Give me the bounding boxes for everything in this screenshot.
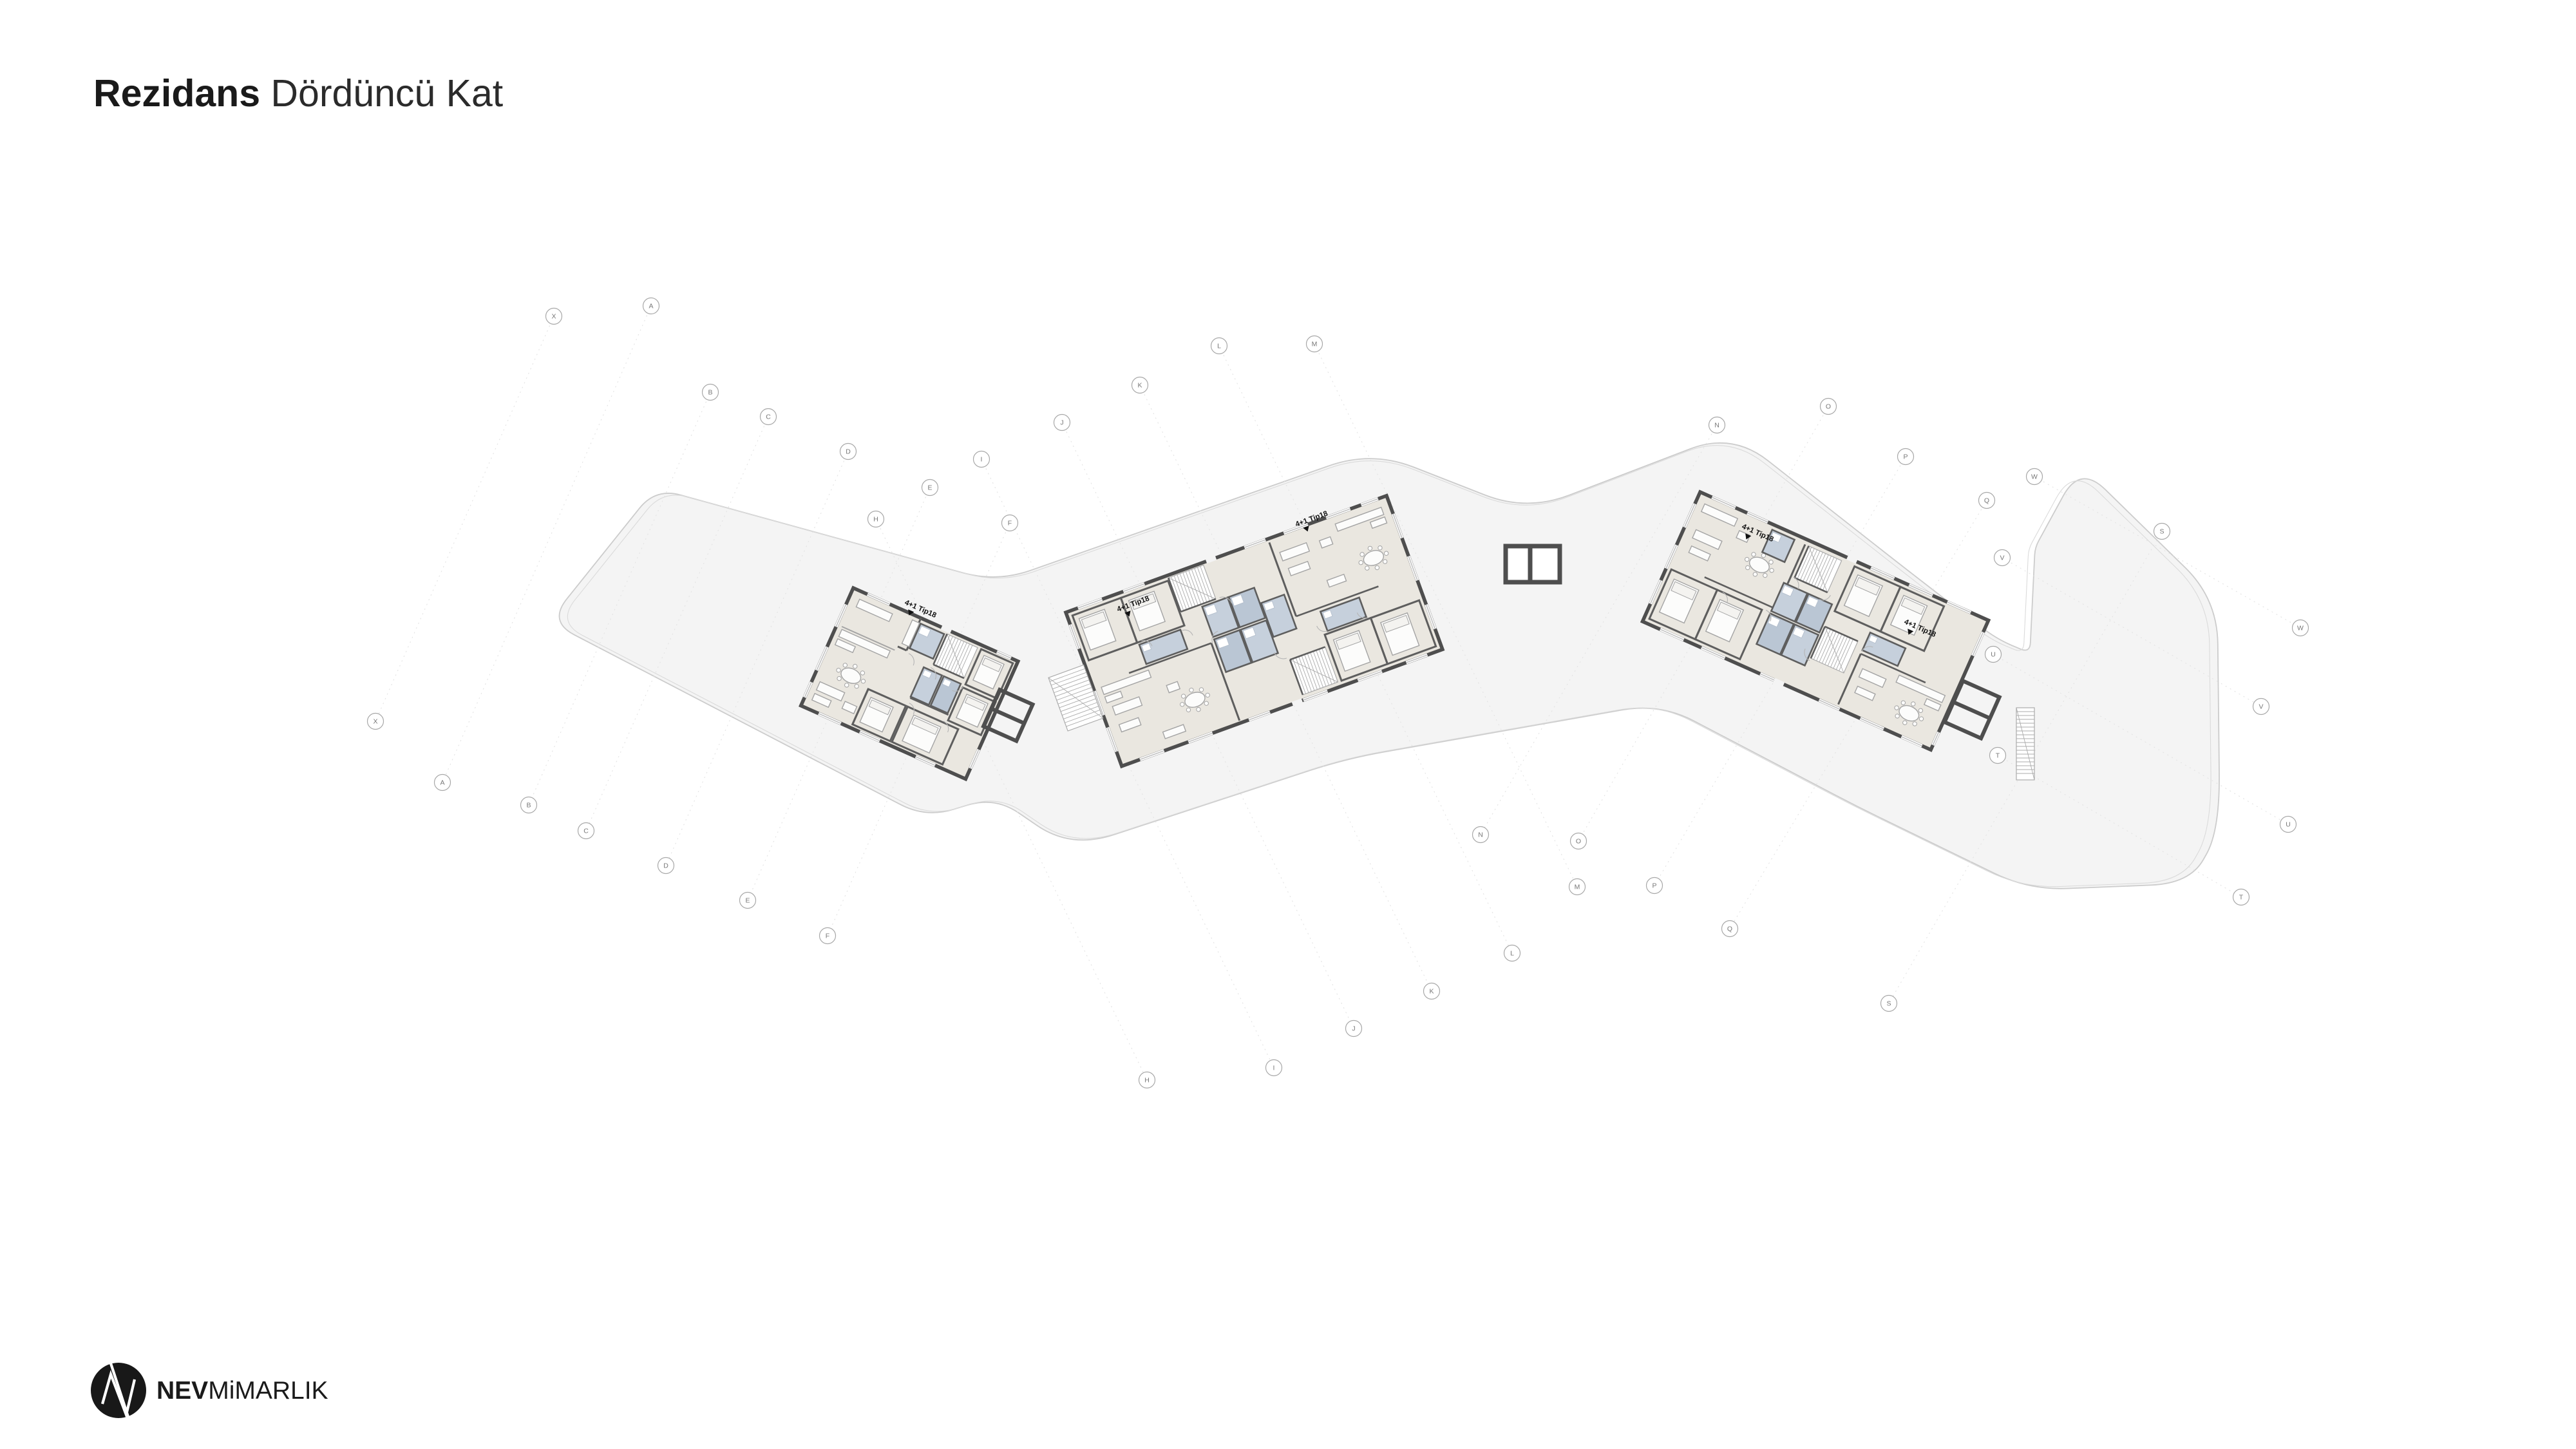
svg-text:H: H — [1144, 1077, 1150, 1084]
svg-text:U: U — [2286, 821, 2291, 829]
svg-text:J: J — [1060, 419, 1063, 427]
svg-text:V: V — [2000, 554, 2004, 562]
svg-text:S: S — [2159, 528, 2164, 536]
svg-text:X: X — [551, 313, 556, 321]
svg-text:N: N — [1478, 831, 1483, 839]
svg-text:W: W — [2297, 625, 2304, 632]
svg-text:M: M — [1312, 341, 1318, 348]
svg-text:X: X — [373, 718, 377, 726]
svg-text:L: L — [1510, 950, 1514, 958]
svg-text:E: E — [927, 484, 932, 492]
svg-text:I: I — [981, 456, 983, 464]
svg-text:Q: Q — [1984, 497, 1989, 505]
svg-text:V: V — [2259, 703, 2263, 711]
svg-text:U: U — [1991, 651, 1996, 659]
svg-text:F: F — [1008, 520, 1012, 527]
svg-text:H: H — [873, 516, 878, 524]
svg-text:O: O — [1826, 403, 1831, 411]
svg-text:A: A — [649, 303, 653, 310]
svg-text:C: C — [583, 828, 589, 835]
svg-text:P: P — [1652, 882, 1656, 890]
svg-text:Rezidans Dördüncü Kat: Rezidans Dördüncü Kat — [93, 72, 503, 115]
svg-text:A: A — [440, 779, 444, 787]
svg-text:J: J — [1352, 1025, 1355, 1033]
svg-text:K: K — [1429, 988, 1434, 996]
svg-text:T: T — [2239, 894, 2244, 902]
svg-text:O: O — [1576, 838, 1581, 846]
svg-text:N: N — [1714, 422, 1719, 430]
svg-text:K: K — [1137, 382, 1142, 390]
svg-text:B: B — [526, 802, 531, 810]
svg-text:D: D — [663, 862, 668, 870]
svg-text:L: L — [1217, 343, 1221, 350]
svg-text:B: B — [708, 389, 712, 397]
svg-text:D: D — [846, 448, 851, 456]
svg-text:NEVMiMARLIK: NEVMiMARLIK — [156, 1377, 328, 1405]
svg-text:T: T — [1996, 752, 2000, 760]
svg-text:M: M — [1575, 884, 1580, 891]
svg-text:F: F — [826, 933, 829, 940]
svg-text:Q: Q — [1727, 925, 1732, 933]
svg-text:W: W — [2031, 473, 2038, 481]
svg-text:S: S — [1886, 1000, 1891, 1008]
svg-text:E: E — [745, 897, 750, 905]
svg-text:C: C — [766, 413, 771, 421]
svg-text:P: P — [1903, 453, 1908, 461]
svg-text:I: I — [1273, 1065, 1275, 1072]
